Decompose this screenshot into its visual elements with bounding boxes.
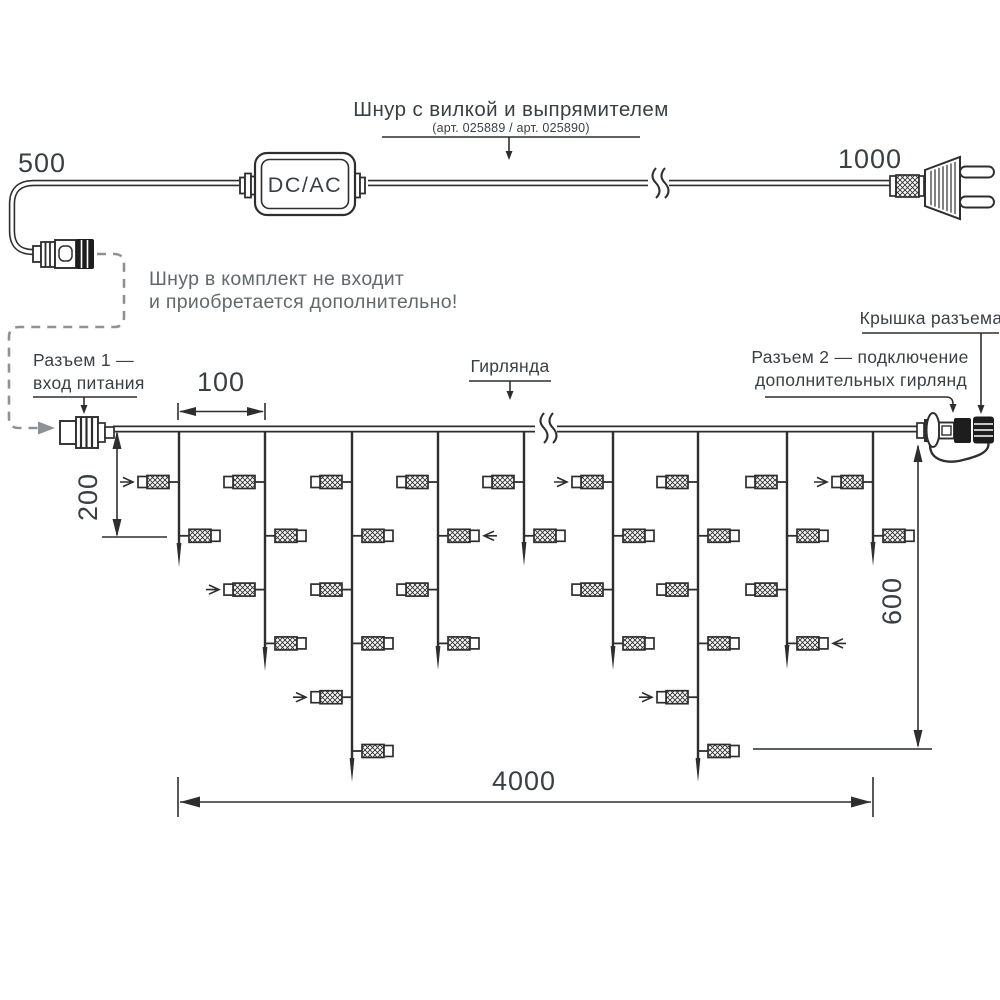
bulb-cap	[311, 692, 320, 703]
connector1-label-line2: вход питания	[33, 373, 145, 393]
bulb-cap	[819, 530, 828, 541]
bulb-body	[189, 529, 211, 542]
note-line1: Шнур в комплект не входит	[149, 268, 404, 290]
dim-200-label: 200	[73, 473, 103, 521]
dcac-label: DC/AC	[268, 173, 342, 197]
bulb-cap	[470, 638, 479, 649]
dim-4000-label: 4000	[492, 766, 556, 796]
bulb-body	[534, 529, 556, 542]
bulb-cap	[311, 584, 320, 595]
strand-tip	[696, 758, 701, 782]
bulb-body	[406, 583, 428, 596]
bulb-body	[708, 637, 730, 650]
bulb-direction-arrow-icon	[639, 693, 652, 702]
bulb-cap	[384, 638, 393, 649]
connector2-socket	[954, 418, 971, 443]
bulb-direction-arrow-icon	[206, 585, 219, 594]
cap-label: Крышка разъема	[860, 308, 1000, 328]
bulb-cap	[556, 530, 565, 541]
bulb-body	[362, 637, 384, 650]
strand-5	[483, 432, 565, 566]
connector2-label-line2: дополнительных гирлянд	[755, 370, 967, 390]
bulb-body	[708, 529, 730, 542]
bulb-cap	[224, 477, 233, 488]
dim-600: 600	[753, 444, 932, 749]
strand-tip	[177, 543, 182, 567]
bulb-cap	[657, 477, 666, 488]
bulb-cap	[657, 692, 666, 703]
bulb-cap	[645, 530, 654, 541]
bulb-direction-arrow-icon	[833, 639, 846, 648]
bulb-cap	[297, 530, 306, 541]
bulb-direction-arrow-icon	[554, 477, 567, 486]
bulb-body	[666, 476, 688, 489]
dim-4000: 4000	[178, 766, 873, 817]
strand-7	[639, 432, 739, 782]
bulb-body	[666, 691, 688, 704]
bulb-cap	[730, 530, 739, 541]
dashed-connection-path	[9, 254, 124, 435]
cable-break-top	[648, 165, 669, 201]
bulb-cap	[657, 584, 666, 595]
strand-8	[746, 432, 846, 669]
dim-600-label: 600	[877, 577, 907, 625]
bulb-cap	[483, 477, 492, 488]
bulb-cap	[384, 530, 393, 541]
bulb-body	[797, 529, 819, 542]
bulb-body	[581, 583, 603, 596]
strand-6	[554, 432, 654, 670]
strand-2	[206, 432, 306, 671]
bulb-body	[275, 637, 297, 650]
bulb-body	[448, 529, 470, 542]
bulb-cap	[730, 638, 739, 649]
strand-tip	[350, 758, 355, 782]
plug-prong-bottom	[960, 197, 994, 208]
bulb-body	[362, 745, 384, 758]
bulb-cap	[211, 530, 220, 541]
bulb-body	[755, 583, 777, 596]
strand-tip	[871, 542, 876, 566]
bulb-cap	[397, 584, 406, 595]
bulb-body	[320, 476, 342, 489]
bulb-cap	[746, 584, 755, 595]
technical-diagram: DC/AC Шнур с вилкой и выпрямителем (арт.…	[0, 0, 1000, 1000]
bulb-cap	[138, 477, 147, 488]
strand-4	[397, 432, 497, 670]
garland-break	[535, 411, 557, 447]
dim-100: 100	[178, 367, 265, 420]
bulb-cap	[746, 477, 755, 488]
connector2-label-line1: Разъем 2 — подключение	[751, 347, 968, 367]
bulb-body	[581, 476, 603, 489]
bulb-body	[448, 637, 470, 650]
strand-tip	[522, 542, 527, 566]
bulb-body	[623, 637, 645, 650]
dcac-converter: DC/AC	[240, 153, 365, 215]
bulb-cap	[819, 638, 828, 649]
bulb-body	[320, 691, 342, 704]
bulb-body	[406, 476, 428, 489]
bulb-cap	[730, 746, 739, 757]
connector1-label-line1: Разъем 1 —	[33, 350, 134, 370]
cord-title: Шнур с вилкой и выпрямителем	[353, 98, 668, 121]
power-plug	[890, 157, 994, 219]
cord-title-callout: Шнур с вилкой и выпрямителем (арт. 02588…	[353, 98, 668, 160]
dashed-arrowhead	[38, 422, 55, 435]
bulb-direction-arrow-icon	[120, 477, 133, 486]
strand-9	[814, 432, 914, 566]
strand-tip	[785, 645, 790, 669]
note-line2: и приобретается дополнительно!	[149, 291, 458, 313]
strand-tip	[436, 646, 441, 670]
dim-1000-label: 1000	[838, 144, 902, 174]
bulb-body	[755, 476, 777, 489]
strand-tip	[263, 647, 268, 671]
bulb-cap	[572, 477, 581, 488]
strand-1	[120, 432, 220, 567]
connector1-callout: Разъем 1 — вход питания	[33, 350, 145, 414]
bulb-cap	[832, 477, 841, 488]
strands-layer	[120, 432, 914, 782]
bulb-cap	[645, 638, 654, 649]
bulb-body	[362, 529, 384, 542]
bulb-cap	[311, 477, 320, 488]
bulb-direction-arrow-icon	[484, 531, 497, 540]
bulb-cap	[297, 638, 306, 649]
strand-3	[293, 432, 393, 782]
bulb-body	[275, 529, 297, 542]
bulb-cap	[905, 530, 914, 541]
bulb-cap	[572, 584, 581, 595]
bulb-body	[708, 745, 730, 758]
connector1-power-input	[60, 417, 114, 448]
connector2-callout: Разъем 2 — подключение дополнительных ги…	[751, 347, 968, 413]
dim-100-label: 100	[197, 367, 245, 397]
dim-500-label: 500	[18, 148, 66, 178]
bulb-body	[666, 583, 688, 596]
cord-note: Шнур в комплект не входит и приобретаетс…	[149, 268, 458, 313]
bulb-body	[883, 529, 905, 542]
bulb-body	[147, 476, 169, 489]
garland-label: Гирлянда	[470, 356, 549, 376]
bulb-body	[797, 637, 819, 650]
garland-callout: Гирлянда	[469, 356, 551, 400]
bulb-body	[841, 476, 863, 489]
bulb-cap	[397, 477, 406, 488]
bulb-body	[492, 476, 514, 489]
bulb-direction-arrow-icon	[814, 477, 827, 486]
bulb-body	[233, 583, 255, 596]
bulb-cap	[470, 530, 479, 541]
bulb-direction-arrow-icon	[293, 693, 306, 702]
strand-tip	[611, 646, 616, 670]
bulb-cap	[384, 746, 393, 757]
bulb-body	[233, 476, 255, 489]
diagram-canvas: DC/AC Шнур с вилкой и выпрямителем (арт.…	[0, 0, 1000, 1000]
bulb-body	[320, 583, 342, 596]
connector2-cable-loop	[930, 441, 988, 462]
bulb-cap	[224, 584, 233, 595]
spare-cord-connector	[33, 239, 94, 269]
cord-subtitle: (арт. 025889 / арт. 025890)	[432, 121, 589, 135]
plug-prong-top	[960, 167, 994, 178]
bulb-body	[623, 529, 645, 542]
connector2-assembly	[917, 413, 994, 462]
